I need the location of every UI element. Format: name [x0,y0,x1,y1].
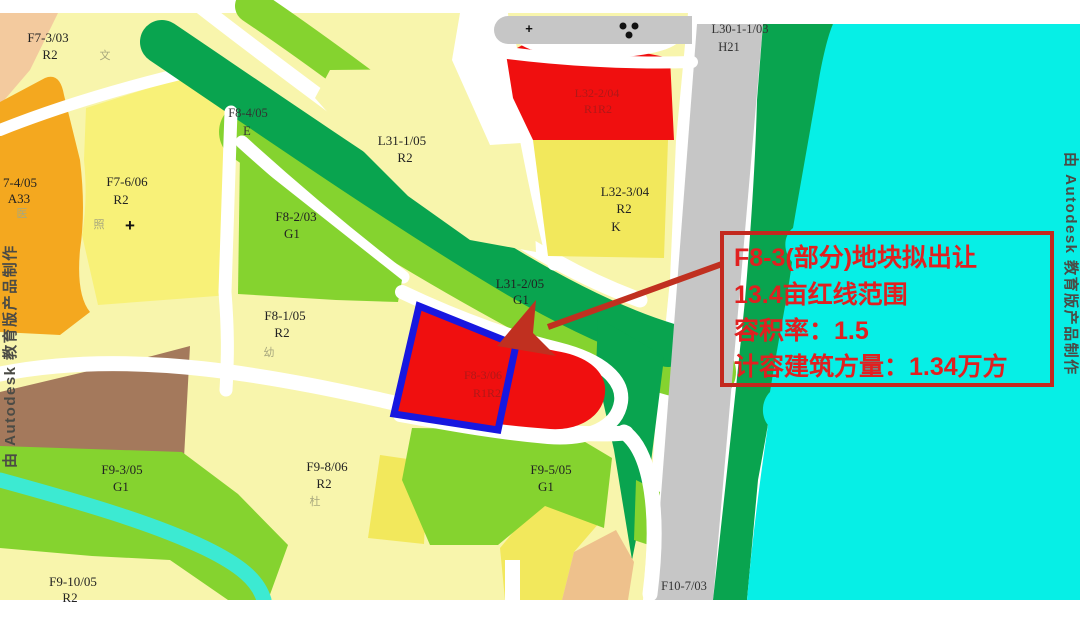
parcel-label-l32-2-code: R1R2 [584,102,612,116]
road-notch-bottom [505,560,520,600]
parcel-label-f9-5-code: G1 [538,479,554,494]
parcel-label-l32-3-note: K [611,219,621,234]
hospital-cross-icon: + [125,216,135,235]
parcel-label-f8-1-id: F8-1/05 [264,308,305,323]
parcel-label-f9-8-note: 杜 [310,494,321,508]
parcel-label-f9-10-id: F9-10/05 [49,574,97,589]
callout-line-2: 13.4亩红线范围 [734,280,908,309]
parcel-f7-6 [82,72,232,305]
callout-line-3: 容积率：1.5 [734,316,869,345]
parcel-label-f7-3-code: R2 [42,47,57,62]
parcel-label-f9-8-code: R2 [316,476,331,491]
parcel-label-f10-7-id: F10-7/03 [661,579,707,593]
zoning-map: F7-3/03 R2 文 7-4/05 A33 医 F7-6/06 R2 照 +… [0,0,1080,625]
parcel-label-l30-1-1-id: L30-1-1/03 [712,22,769,36]
parcel-label-f8-1-note: 幼 [264,346,275,359]
zoning-map-screenshot: F7-3/03 R2 文 7-4/05 A33 医 F7-6/06 R2 照 +… [0,0,1080,625]
watermark-left: 由 Autodesk 教育版产品制作 [1,244,19,468]
callout-line-1: F8-3(部分)地块拟出让 [734,243,977,272]
parcel-label-l31-1-code: R2 [397,150,412,165]
parcel-label-f8-3-id: F8-3/06 [464,368,502,382]
road-west-f8 [225,112,231,390]
parcel-label-f9-10-code: R2 [62,590,77,605]
parcel-label-f7-6-id: F7-6/06 [106,174,148,189]
parcel-label-l32-2-id: L32-2/04 [575,86,620,100]
parcel-label-l32-3-code: R2 [616,201,631,216]
parcel-label-f7-6-note: 照 [94,218,105,231]
parcel-label-f7-3-id: F7-3/03 [27,30,68,45]
parcel-label-l31-2-code: G1 [513,292,529,307]
parcel-label-l31-1-id: L31-1/05 [378,133,426,148]
parcel-label-l30-1-1-code: H21 [718,40,740,54]
parcel-label-f7-4-id: 7-4/05 [3,175,37,190]
parcel-label-f8-4-id: F8-4/05 [228,106,268,120]
parcel-label-f7-4-code: A33 [8,191,30,206]
callout-line-4: 计容建筑方量：1.34万方 [734,352,1008,381]
parcel-label-f7-6-code: R2 [113,192,128,207]
parcel-label-f9-3-code: G1 [113,479,129,494]
watermark-right: 由 Autodesk 教育版产品制作 [1062,152,1080,376]
parcel-label-f7-4-note: 医 [17,208,28,220]
parcel-label-f8-3-code: R1R2 [473,386,501,400]
bottom-margin [0,600,1080,625]
parcel-label-f7-3-note: 文 [100,48,111,62]
parcel-label-f8-1-code: R2 [274,325,289,340]
parcel-label-f8-2-code: G1 [284,226,300,241]
parcel-label-f8-4-code: E [243,124,251,138]
road-top-gray-2 [660,16,692,44]
parcel-label-l31-2-id: L31-2/05 [496,276,544,291]
parcel-l32-3 [533,140,668,258]
plus-marker-icon: + [525,21,533,36]
parcel-label-l32-3-id: L32-3/04 [601,184,650,199]
parcel-label-f9-8-id: F9-8/06 [306,459,348,474]
parcel-label-f8-2-id: F8-2/03 [275,209,316,224]
parcel-label-f9-5-id: F9-5/05 [530,462,571,477]
parcel-label-f9-3-id: F9-3/05 [101,462,142,477]
